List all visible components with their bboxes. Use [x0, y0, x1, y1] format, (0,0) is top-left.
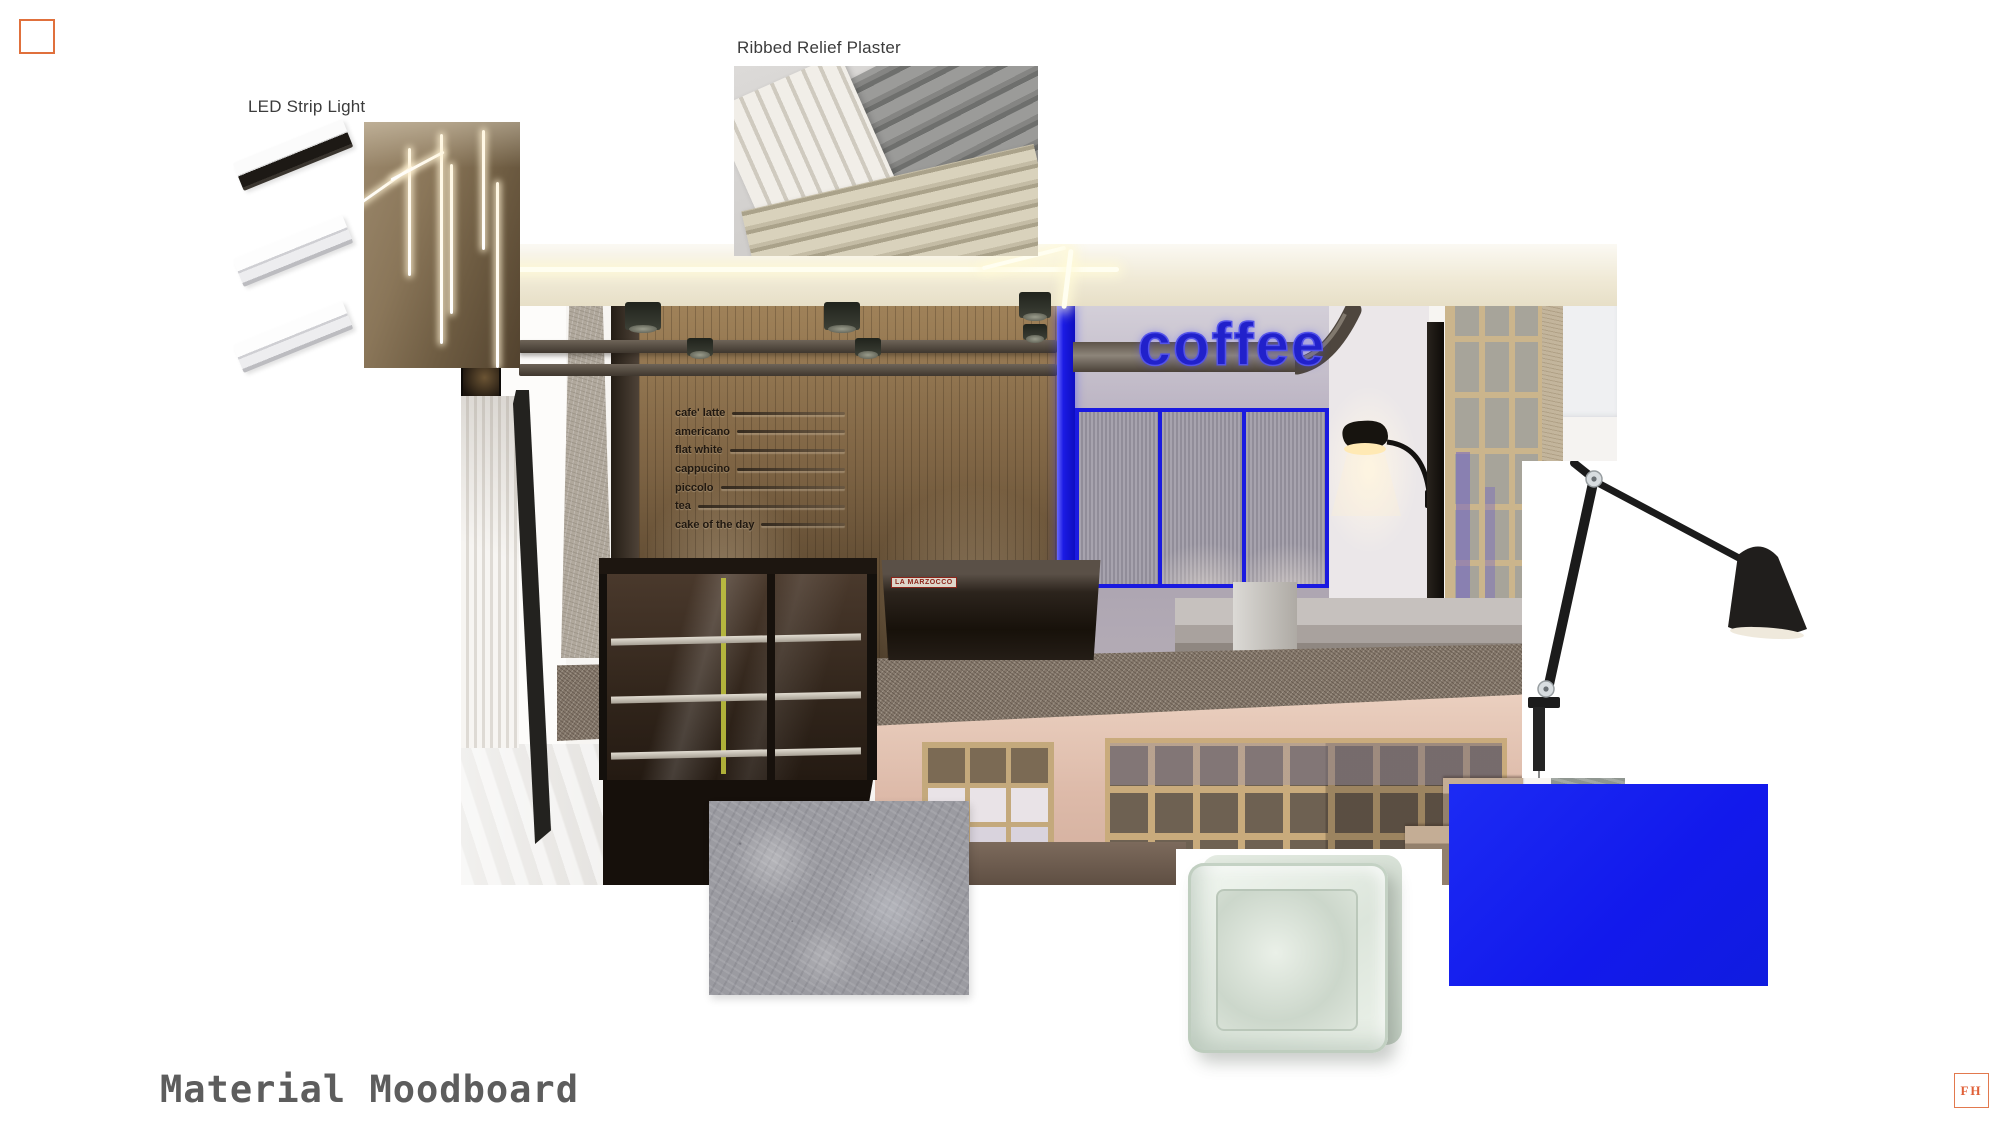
- downlight: [625, 302, 661, 330]
- black-wall-bar: [1427, 322, 1444, 634]
- led-profile-image-silver-2: [240, 304, 346, 370]
- plaster-photo: [734, 66, 1038, 256]
- coffee-neon-sign: coffee: [1117, 310, 1347, 379]
- menu-board: cafe' latte americano flat white cappuci…: [675, 404, 845, 534]
- menu-item: cafe' latte: [675, 404, 845, 423]
- plaster-label: Ribbed Relief Plaster: [737, 38, 901, 58]
- downlight: [855, 338, 881, 356]
- wall-lamp-product-photo: [1522, 461, 1858, 778]
- glass-block: [1188, 863, 1388, 1053]
- downlight: [1019, 292, 1051, 318]
- ceiling-light-line-h: [471, 267, 1119, 272]
- machine-brand-label: LA MARZOCCO: [891, 577, 957, 588]
- downlight: [1023, 324, 1047, 340]
- led-profile-image-black: [240, 118, 346, 192]
- mesh-pane: [1079, 412, 1158, 584]
- espresso-machine: LA MARZOCCO: [877, 560, 1105, 660]
- mesh-panel-wall: [1075, 408, 1329, 588]
- menu-item: tea: [675, 497, 845, 516]
- menu-item: piccolo: [675, 478, 845, 497]
- glass-block-photo: [1176, 849, 1442, 1055]
- menu-item: cappucino: [675, 460, 845, 479]
- led-strip-photo: [364, 122, 520, 368]
- led-strip-label: LED Strip Light: [248, 97, 365, 117]
- mesh-pane: [1242, 412, 1325, 584]
- downlight: [824, 302, 860, 330]
- vertical-blinds: [461, 396, 519, 748]
- brand-logo: FH: [1954, 1073, 1989, 1108]
- concrete-texture-photo: [709, 801, 969, 995]
- display-case-glass: [599, 574, 877, 780]
- cafe-interior-render: cafe' latte americano flat white cappuci…: [461, 244, 1617, 885]
- menu-item: americano: [675, 423, 845, 442]
- page-title: Material Moodboard: [160, 1068, 579, 1111]
- downlight: [687, 338, 713, 356]
- menu-item: flat white: [675, 441, 845, 460]
- mesh-pane: [1158, 412, 1241, 584]
- wall-rail-lower: [519, 364, 1057, 376]
- blue-color-swatch: [1449, 784, 1768, 986]
- wall-lamp-drawing: [1522, 461, 1858, 778]
- wall-rail-upper: [519, 340, 1057, 353]
- corner-accent-square: [19, 19, 55, 54]
- menu-item: cake of the day: [675, 516, 845, 535]
- moodboard-page: LED Strip Light Ribbed Relief Plaster: [0, 0, 2016, 1134]
- brand-logo-monogram: FH: [1960, 1083, 1982, 1099]
- led-profile-image-silver: [240, 210, 346, 290]
